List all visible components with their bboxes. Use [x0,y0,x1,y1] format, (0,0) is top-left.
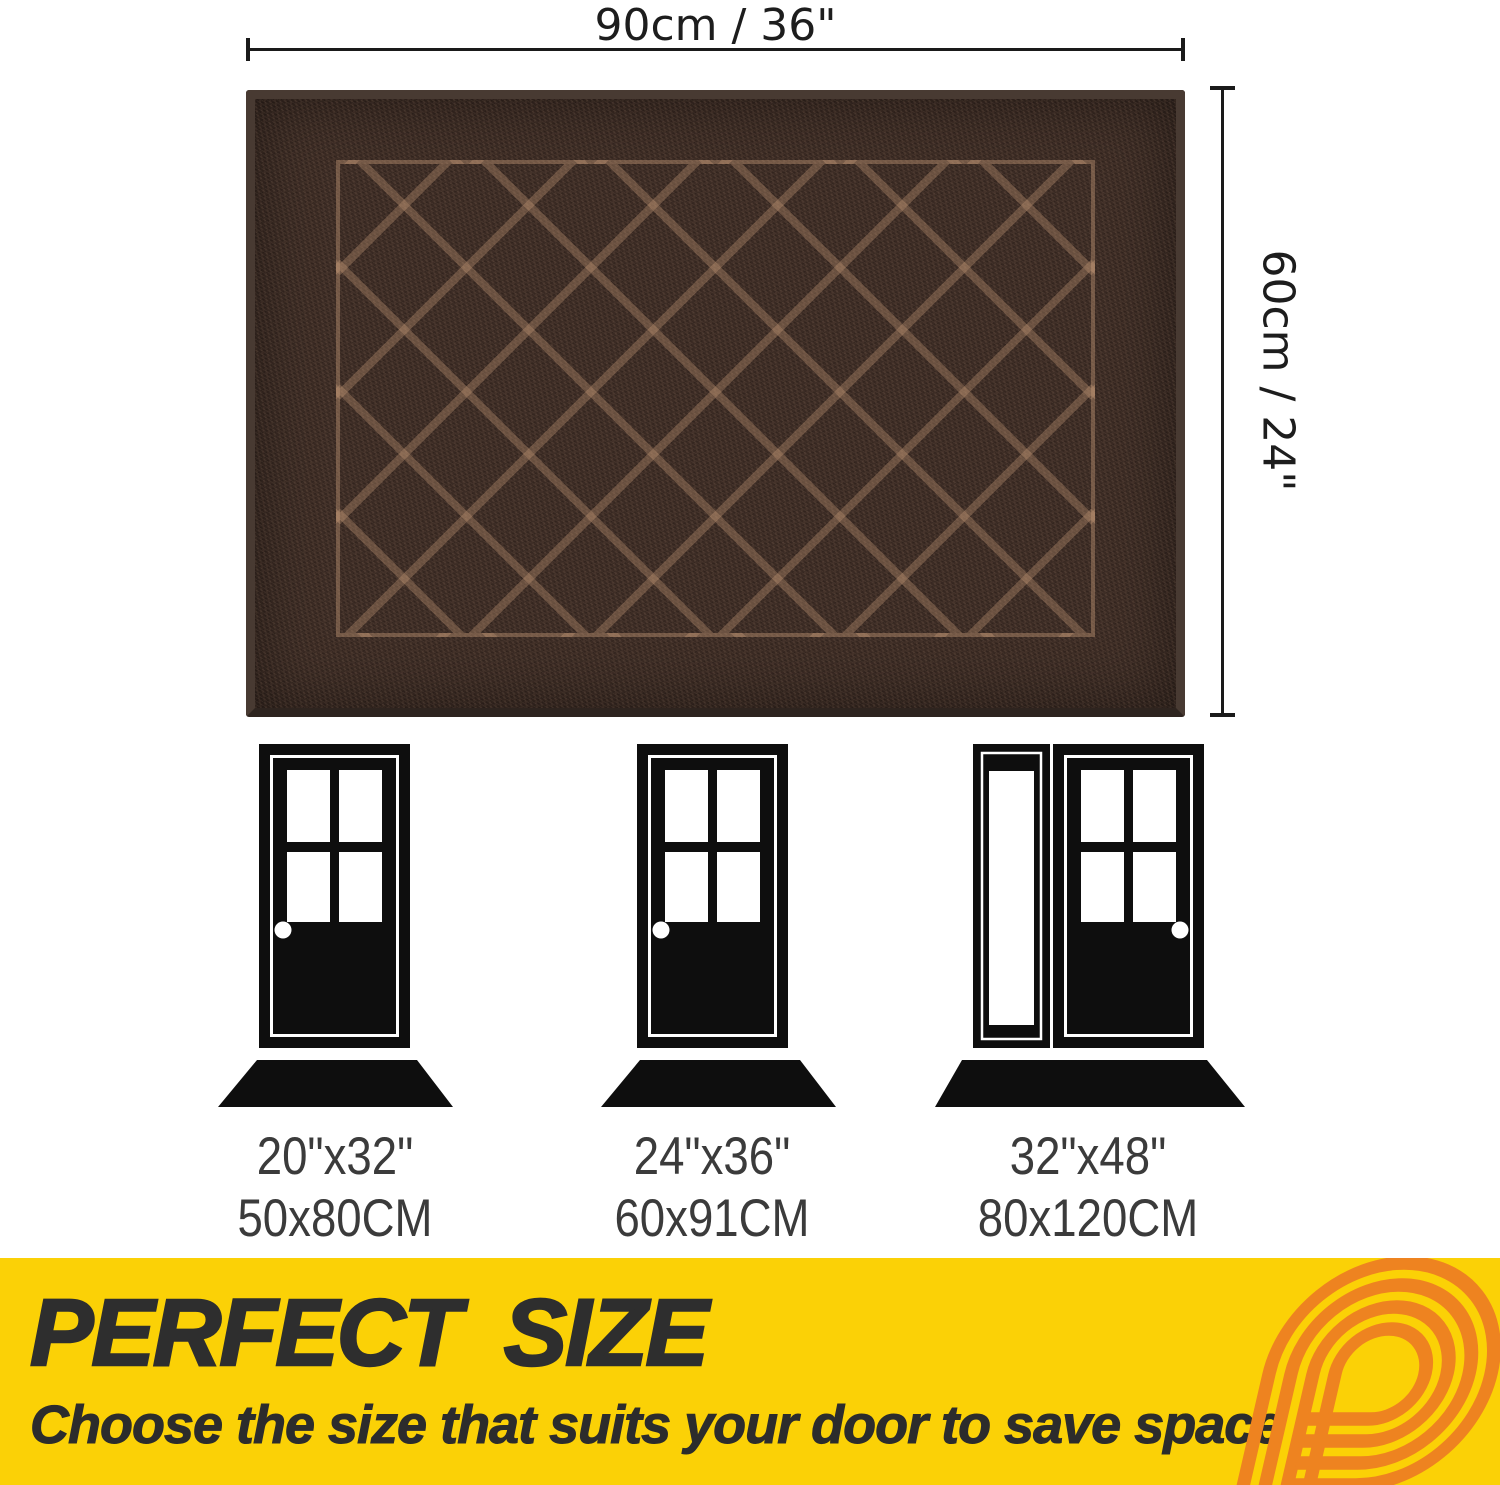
doorknob-icon [275,922,292,939]
trapezoid-mat-icon [935,1060,1245,1107]
doormat-photo [246,90,1185,717]
single-door-icon [1053,744,1204,1048]
width-dimension-line [248,48,1183,51]
product-infographic: 90cm / 36" 60cm / 24" [0,0,1500,1485]
height-dimension-tick-bottom [1210,713,1235,717]
trapezoid-mat-icon [601,1060,836,1107]
width-dimension-tick-left [246,38,250,61]
single-door-icon [259,744,410,1048]
trapezoid-mat-icon [218,1060,453,1107]
size-option-3-cm: 80x120CM [933,1188,1243,1249]
width-dimension-tick-right [1181,38,1185,61]
doorknob-icon [653,922,670,939]
size-option-1-cm: 50x80CM [180,1188,490,1249]
size-option-1-inches: 20"x32" [180,1126,490,1187]
height-dimension-tick-top [1210,86,1235,90]
height-dimension-line [1221,88,1224,717]
perfect-size-banner: PERFECT SIZE Choose the size that suits … [0,1258,1500,1485]
banner-title: PERFECT SIZE [30,1286,707,1381]
size-option-2-inches: 24"x36" [557,1126,867,1187]
letter-p-stripes-logo-icon [1232,1258,1500,1485]
size-option-3-inches: 32"x48" [933,1126,1243,1187]
single-door-icon [637,744,788,1048]
banner-subtitle: Choose the size that suits your door to … [30,1398,1282,1452]
size-option-2-cm: 60x91CM [557,1188,867,1249]
doorknob-icon [1172,922,1189,939]
height-dimension-label: 60cm / 24" [1253,249,1304,491]
doormat-diamond-pattern [336,160,1095,637]
height-dimension-label-wrap: 60cm / 24" [1236,60,1320,680]
width-dimension-label: 90cm / 36" [248,0,1183,51]
sidelight-icon [973,744,1050,1048]
